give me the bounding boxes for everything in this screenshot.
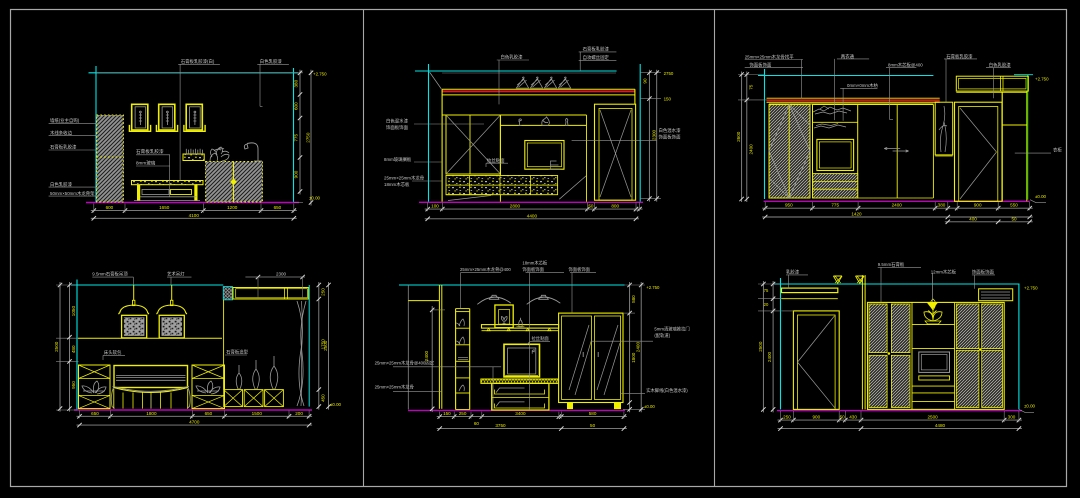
svg-text:5mm清玻璃推拉门: 5mm清玻璃推拉门 (654, 326, 689, 333)
svg-text:950: 950 (71, 381, 76, 389)
svg-text:650: 650 (91, 411, 99, 416)
svg-text:木线条收边: 木线条收边 (50, 129, 73, 136)
svg-text:2400: 2400 (892, 203, 903, 208)
svg-text:775: 775 (293, 134, 298, 142)
svg-text:1800: 1800 (146, 411, 157, 416)
svg-text:2400: 2400 (636, 342, 641, 353)
svg-text:400: 400 (969, 216, 977, 221)
svg-text:250: 250 (320, 288, 325, 296)
svg-text:3750: 3750 (495, 423, 506, 428)
svg-text:+2.750: +2.750 (313, 72, 327, 77)
svg-text:石膏板乳胶漆: 石膏板乳胶漆 (136, 148, 164, 155)
svg-text:3400: 3400 (515, 411, 526, 416)
svg-text:50: 50 (588, 204, 594, 209)
svg-text:600: 600 (106, 205, 114, 210)
svg-text:实木脚线(白色混水漆): 实木脚线(白色混水漆) (646, 387, 688, 394)
svg-text:430: 430 (849, 415, 857, 420)
svg-text:±0.00: ±0.00 (330, 402, 342, 407)
svg-text:200: 200 (295, 411, 303, 416)
svg-text:1650: 1650 (159, 205, 170, 210)
svg-text:250: 250 (783, 415, 791, 420)
svg-text:床头软包: 床头软包 (104, 349, 122, 356)
svg-text:580: 580 (631, 295, 636, 303)
svg-text:4100: 4100 (189, 213, 200, 218)
svg-text:2500: 2500 (927, 415, 938, 420)
svg-text:±0.00: ±0.00 (309, 196, 321, 201)
svg-text:25mm×25mm木龙骨@400: 25mm×25mm木龙骨@400 (460, 266, 511, 273)
svg-text:450: 450 (320, 394, 325, 402)
svg-text:100: 100 (431, 204, 439, 209)
svg-text:580: 580 (589, 411, 597, 416)
svg-text:石膏板乳胶漆: 石膏板乳胶漆 (583, 45, 610, 52)
svg-text:380: 380 (293, 79, 298, 87)
svg-text:2400: 2400 (424, 350, 429, 361)
svg-text:+2.750: +2.750 (1035, 77, 1049, 82)
svg-text:饰面板饰面: 饰面板饰面 (972, 269, 995, 276)
svg-text:石膏板造型: 石膏板造型 (226, 349, 249, 356)
svg-text:+2.750: +2.750 (1024, 286, 1038, 291)
svg-text:0mm×0mm木枋: 0mm×0mm木枋 (847, 82, 878, 89)
svg-text:380: 380 (938, 203, 946, 208)
svg-text:2500: 2500 (323, 340, 328, 351)
svg-text:650: 650 (274, 205, 282, 210)
svg-text:+2.750: +2.750 (646, 285, 660, 290)
svg-text:饰面板饰面: 饰面板饰面 (522, 266, 544, 273)
svg-text:50: 50 (590, 423, 596, 428)
svg-text:480: 480 (71, 345, 76, 353)
svg-text:150: 150 (664, 96, 672, 101)
svg-text:600: 600 (293, 102, 298, 110)
svg-text:乳胶漆: 乳胶漆 (786, 269, 800, 276)
svg-text:25mm×25mm木龙骨: 25mm×25mm木龙骨 (375, 384, 414, 391)
svg-text:18mm木芯板: 18mm木芯板 (522, 260, 548, 267)
svg-text:900: 900 (812, 415, 820, 420)
svg-text:300: 300 (1008, 415, 1016, 420)
svg-text:2500: 2500 (54, 341, 59, 352)
svg-text:75: 75 (748, 84, 753, 90)
svg-text:1050: 1050 (71, 306, 76, 317)
svg-text:2300: 2300 (276, 272, 287, 277)
svg-text:石膏板乳胶漆: 石膏板乳胶漆 (50, 144, 77, 151)
svg-text:90: 90 (642, 78, 647, 84)
svg-text:±0.00: ±0.00 (1024, 403, 1036, 408)
svg-text:拉丝贴面: 拉丝贴面 (532, 335, 550, 342)
svg-text:±0.00: ±0.00 (644, 404, 655, 409)
svg-text:±0.00: ±0.00 (1035, 194, 1047, 199)
svg-text:18mm木芯板: 18mm木芯板 (384, 181, 410, 188)
svg-text:1800: 1800 (631, 352, 636, 363)
svg-text:饰面板饰面: 饰面板饰面 (386, 124, 409, 131)
svg-text:650: 650 (205, 411, 213, 416)
svg-text:25mm×25mm木龙骨: 25mm×25mm木龙骨 (384, 174, 425, 181)
svg-text:2800: 2800 (510, 204, 521, 209)
svg-text:白色乳胶漆: 白色乳胶漆 (501, 54, 524, 61)
svg-text:饰面板饰面: 饰面板饰面 (659, 133, 682, 140)
svg-text:8mm玻璃搁板: 8mm玻璃搁板 (384, 156, 412, 163)
svg-text:4400: 4400 (527, 213, 538, 218)
svg-text:250: 250 (459, 411, 467, 416)
svg-text:150: 150 (443, 411, 451, 416)
svg-text:60: 60 (474, 421, 480, 426)
svg-text:2750: 2750 (306, 132, 311, 143)
svg-text:9.5mm石膏板吊顶: 9.5mm石膏板吊顶 (92, 271, 128, 278)
svg-text:2400: 2400 (748, 144, 753, 155)
svg-text:12mm木芯板: 12mm木芯板 (931, 269, 957, 276)
svg-text:艺术吊灯: 艺术吊灯 (167, 271, 185, 278)
svg-text:900: 900 (974, 203, 982, 208)
svg-text:950: 950 (785, 203, 793, 208)
svg-text:墙纸(业主自购): 墙纸(业主自购) (50, 117, 80, 124)
svg-text:(配轨道): (配轨道) (654, 332, 670, 339)
svg-text:775: 775 (831, 203, 839, 208)
svg-text:拉丝贴面: 拉丝贴面 (487, 157, 505, 164)
svg-text:1420: 1420 (851, 212, 862, 217)
svg-text:2300: 2300 (651, 129, 656, 140)
svg-text:50: 50 (1011, 216, 1017, 221)
svg-text:白色混水漆: 白色混水漆 (386, 117, 409, 124)
svg-text:50: 50 (840, 415, 846, 420)
svg-text:4480: 4480 (935, 423, 946, 428)
svg-text:800: 800 (611, 204, 619, 209)
svg-text:20: 20 (764, 302, 769, 307)
svg-text:4700: 4700 (189, 420, 200, 425)
svg-text:8mm玻璃: 8mm玻璃 (136, 160, 156, 167)
svg-text:1200: 1200 (227, 205, 238, 210)
svg-text:2400: 2400 (767, 351, 772, 362)
svg-text:1500: 1500 (252, 411, 263, 416)
svg-text:550: 550 (1010, 203, 1018, 208)
svg-text:75: 75 (764, 288, 769, 293)
svg-text:2600: 2600 (736, 131, 741, 142)
svg-text:2500: 2500 (758, 341, 763, 352)
svg-text:白色混水漆: 白色混水漆 (659, 127, 682, 134)
svg-text:衣柜: 衣柜 (1053, 147, 1062, 154)
svg-text:饰面板饰面: 饰面板饰面 (569, 266, 591, 273)
svg-text:9.5mm石膏板: 9.5mm石膏板 (878, 261, 905, 268)
svg-text:2750: 2750 (664, 71, 674, 76)
svg-text:900: 900 (293, 170, 298, 178)
